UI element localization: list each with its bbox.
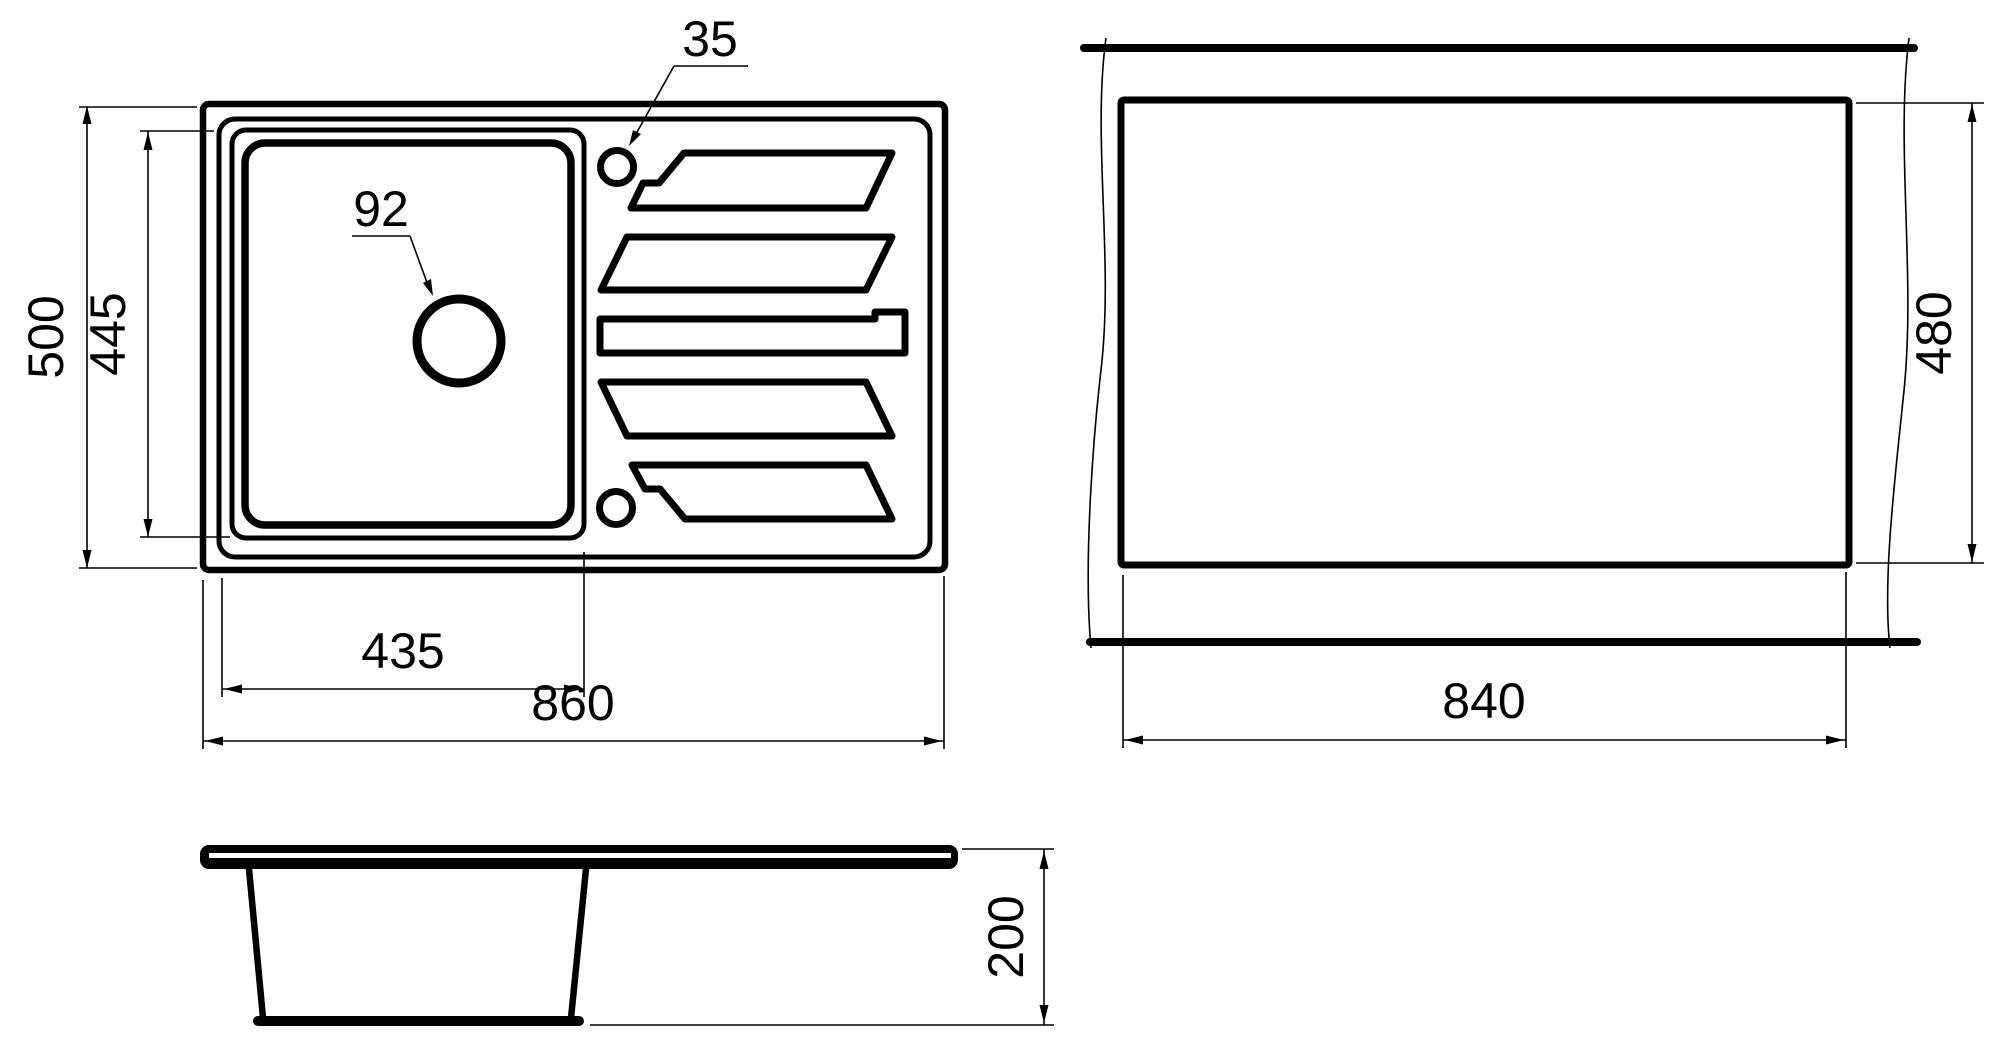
- tap-hole-top: [601, 151, 634, 184]
- leader-arrowhead: [629, 130, 641, 146]
- arrowhead-right: [1826, 736, 1844, 745]
- drain-hole: [417, 299, 501, 383]
- arrowhead-down: [1040, 1005, 1049, 1023]
- arrowhead-down: [144, 519, 153, 537]
- drainboard-rib-1: [631, 153, 892, 208]
- cutout-outline: [1121, 100, 1849, 565]
- dimension-cutout-depth: 480: [1856, 103, 1984, 563]
- dimension-label-435: 435: [361, 623, 444, 679]
- arrowhead-down: [1968, 544, 1977, 562]
- leader-arrowhead: [423, 279, 433, 296]
- arrowhead-up: [144, 132, 153, 150]
- drawing-canvas: 500 445 435 860: [0, 0, 2000, 1040]
- arrowhead-up: [1968, 104, 1977, 122]
- leader-tap-hole: 35: [629, 11, 748, 146]
- dimension-label-445: 445: [80, 292, 136, 375]
- dimension-label-480: 480: [1906, 291, 1962, 374]
- bowl-right-wall: [571, 869, 586, 1018]
- rim-profile-gap: [209, 853, 951, 858]
- dimension-cutout-width: 840: [1123, 572, 1846, 748]
- bowl-left-wall: [249, 869, 263, 1018]
- arrowhead-up: [83, 106, 92, 124]
- dimension-label-35: 35: [682, 11, 738, 67]
- drainboard-rib-5: [632, 465, 892, 519]
- dimension-label-860: 860: [531, 675, 614, 731]
- dimension-bowl-depth: 200: [590, 849, 1054, 1025]
- section-view: 200: [200, 845, 1054, 1025]
- drainboard-rib-4: [601, 382, 892, 436]
- arrowhead-left: [224, 685, 242, 694]
- sink-dimension-drawing: 500 445 435 860: [0, 0, 2000, 1040]
- dimension-label-500: 500: [18, 295, 74, 378]
- dimension-basin-depth: 445: [80, 131, 230, 537]
- dimension-overall-width: 860: [203, 576, 944, 749]
- drainboard-rib-3: [600, 312, 905, 353]
- leader-drain-hole: 92: [352, 181, 433, 296]
- dimension-label-92: 92: [353, 181, 409, 237]
- arrowhead-right: [924, 737, 942, 746]
- leader-line: [410, 236, 429, 288]
- drainboard-rib-2: [601, 237, 892, 290]
- arrowhead-down: [83, 550, 92, 568]
- dimension-basin-width: 435: [222, 552, 584, 697]
- cutout-view: 480 840: [1084, 38, 1984, 748]
- arrowhead-up: [1040, 851, 1049, 869]
- tap-hole-bottom: [600, 492, 633, 525]
- dimension-label-200: 200: [978, 895, 1034, 978]
- break-line-left: [1088, 38, 1106, 648]
- drainboard-ribs: [600, 153, 905, 519]
- top-view: 500 445 435 860: [18, 11, 945, 749]
- arrowhead-left: [205, 737, 223, 746]
- dimension-label-840: 840: [1442, 673, 1525, 729]
- arrowhead-left: [1125, 736, 1143, 745]
